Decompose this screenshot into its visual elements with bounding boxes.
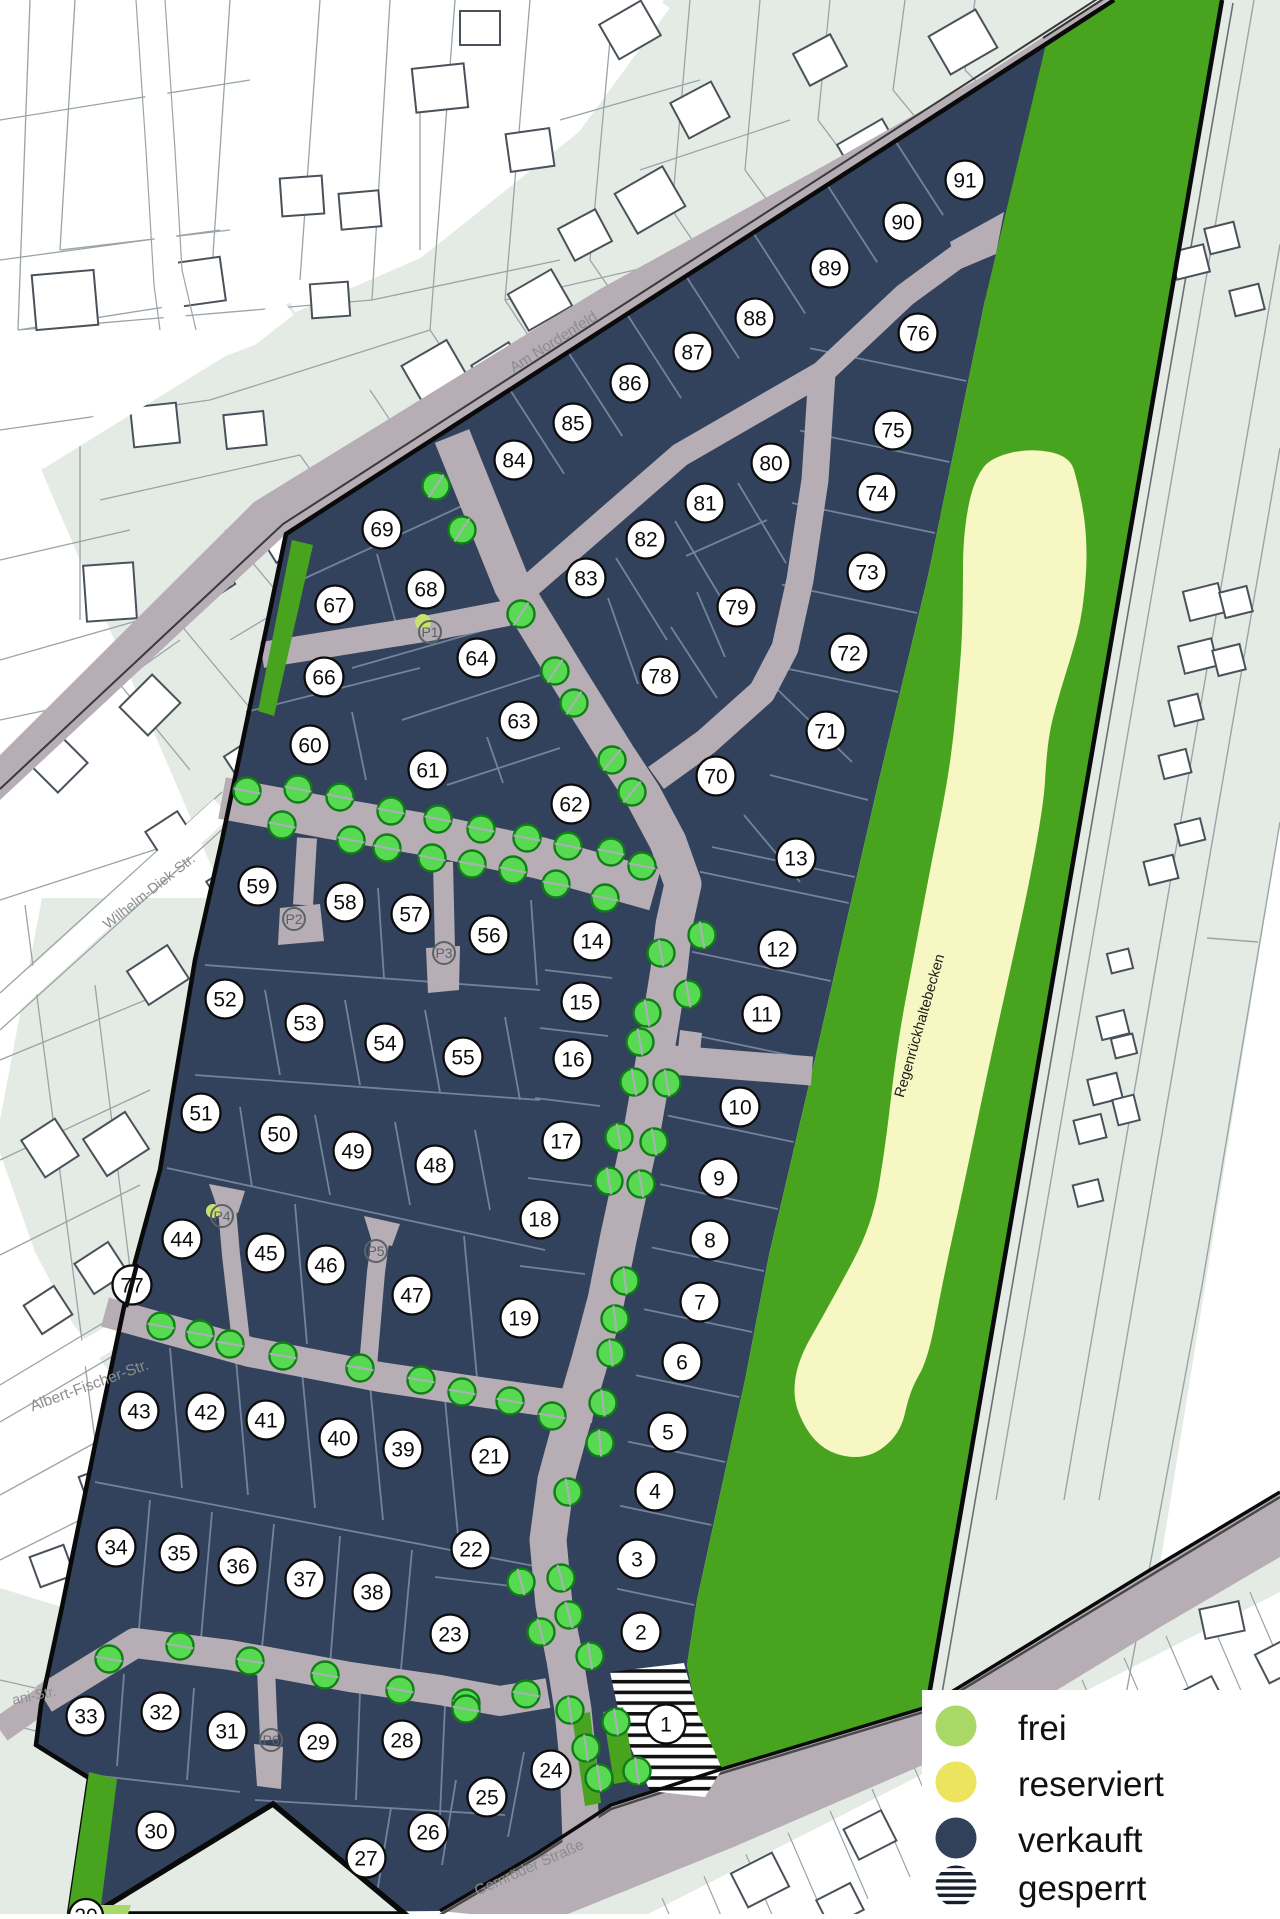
svg-text:90: 90 xyxy=(891,212,914,235)
svg-text:85: 85 xyxy=(561,413,584,436)
svg-text:4: 4 xyxy=(649,1481,661,1504)
svg-text:55: 55 xyxy=(451,1047,474,1070)
svg-text:75: 75 xyxy=(881,420,904,443)
svg-text:66: 66 xyxy=(312,667,335,690)
svg-text:62: 62 xyxy=(559,794,582,817)
svg-text:35: 35 xyxy=(167,1543,190,1566)
svg-text:verkauft: verkauft xyxy=(1018,1821,1143,1860)
svg-text:63: 63 xyxy=(507,711,530,734)
svg-text:P3: P3 xyxy=(435,945,452,961)
svg-text:71: 71 xyxy=(814,721,837,744)
svg-text:82: 82 xyxy=(634,529,657,552)
svg-text:67: 67 xyxy=(323,595,346,618)
svg-text:60: 60 xyxy=(298,735,321,758)
svg-text:8: 8 xyxy=(704,1230,716,1253)
svg-text:88: 88 xyxy=(743,308,766,331)
svg-text:50: 50 xyxy=(267,1124,290,1147)
svg-text:2: 2 xyxy=(635,1622,647,1645)
svg-text:64: 64 xyxy=(465,648,489,671)
svg-text:38: 38 xyxy=(360,1582,383,1605)
svg-text:7: 7 xyxy=(694,1292,706,1315)
svg-text:26: 26 xyxy=(416,1822,439,1845)
svg-text:18: 18 xyxy=(528,1209,551,1232)
svg-text:48: 48 xyxy=(423,1155,446,1178)
svg-text:13: 13 xyxy=(784,848,807,871)
svg-text:19: 19 xyxy=(508,1308,531,1331)
svg-text:68: 68 xyxy=(414,579,437,602)
svg-text:30: 30 xyxy=(144,1821,167,1844)
svg-text:21: 21 xyxy=(478,1446,501,1469)
svg-text:10: 10 xyxy=(728,1097,751,1120)
svg-text:9: 9 xyxy=(713,1168,725,1191)
svg-text:6: 6 xyxy=(676,1352,688,1375)
svg-text:54: 54 xyxy=(373,1033,397,1056)
svg-text:84: 84 xyxy=(502,450,526,473)
svg-text:72: 72 xyxy=(837,643,860,666)
svg-text:51: 51 xyxy=(189,1103,212,1126)
svg-text:P1: P1 xyxy=(421,624,438,640)
svg-text:15: 15 xyxy=(569,992,592,1015)
svg-text:40: 40 xyxy=(327,1428,350,1451)
svg-text:31: 31 xyxy=(215,1721,238,1744)
svg-text:22: 22 xyxy=(459,1539,482,1562)
svg-text:17: 17 xyxy=(550,1131,573,1154)
svg-text:49: 49 xyxy=(341,1141,364,1164)
svg-text:29: 29 xyxy=(306,1732,329,1755)
svg-text:53: 53 xyxy=(293,1013,316,1036)
svg-text:39: 39 xyxy=(391,1439,414,1462)
svg-text:12: 12 xyxy=(766,939,789,962)
svg-text:79: 79 xyxy=(725,597,748,620)
svg-text:70: 70 xyxy=(704,766,727,789)
svg-text:P6: P6 xyxy=(262,1732,279,1748)
svg-text:52: 52 xyxy=(213,989,236,1012)
svg-text:P2: P2 xyxy=(285,911,302,927)
svg-text:57: 57 xyxy=(399,904,422,927)
svg-text:81: 81 xyxy=(693,493,716,516)
svg-text:1: 1 xyxy=(660,1714,672,1737)
svg-text:27: 27 xyxy=(354,1848,377,1871)
svg-text:42: 42 xyxy=(194,1402,217,1425)
svg-text:78: 78 xyxy=(648,666,671,689)
svg-text:87: 87 xyxy=(681,342,704,365)
svg-text:reserviert: reserviert xyxy=(1018,1765,1164,1804)
svg-text:11: 11 xyxy=(751,1004,773,1027)
svg-text:73: 73 xyxy=(855,562,878,585)
svg-text:28: 28 xyxy=(390,1730,413,1753)
svg-text:69: 69 xyxy=(370,519,393,542)
svg-text:gesperrt: gesperrt xyxy=(1018,1869,1147,1908)
svg-text:16: 16 xyxy=(561,1049,584,1072)
svg-text:41: 41 xyxy=(254,1410,277,1433)
svg-text:46: 46 xyxy=(314,1255,337,1278)
svg-text:89: 89 xyxy=(818,258,841,281)
svg-text:83: 83 xyxy=(574,568,597,591)
svg-text:45: 45 xyxy=(254,1243,277,1266)
svg-text:44: 44 xyxy=(170,1229,194,1252)
svg-text:59: 59 xyxy=(246,876,269,899)
svg-text:36: 36 xyxy=(226,1556,249,1579)
svg-text:32: 32 xyxy=(149,1702,172,1725)
svg-text:25: 25 xyxy=(475,1787,498,1810)
svg-text:5: 5 xyxy=(662,1422,674,1445)
svg-text:34: 34 xyxy=(104,1537,128,1560)
svg-text:86: 86 xyxy=(618,373,641,396)
svg-text:33: 33 xyxy=(74,1706,97,1729)
svg-text:76: 76 xyxy=(906,323,929,346)
svg-text:20: 20 xyxy=(74,1905,97,1914)
svg-text:58: 58 xyxy=(333,892,356,915)
svg-text:23: 23 xyxy=(438,1624,461,1647)
svg-text:56: 56 xyxy=(477,925,500,948)
svg-text:3: 3 xyxy=(631,1549,643,1572)
svg-text:P4: P4 xyxy=(213,1208,230,1224)
svg-text:24: 24 xyxy=(539,1760,563,1783)
svg-text:74: 74 xyxy=(865,483,889,506)
svg-text:frei: frei xyxy=(1018,1709,1067,1748)
svg-text:47: 47 xyxy=(400,1285,423,1308)
svg-text:43: 43 xyxy=(127,1401,150,1424)
svg-text:14: 14 xyxy=(580,931,604,954)
svg-text:91: 91 xyxy=(953,170,976,193)
svg-text:37: 37 xyxy=(293,1569,316,1592)
svg-text:61: 61 xyxy=(416,760,439,783)
svg-text:P5: P5 xyxy=(367,1243,384,1259)
svg-text:80: 80 xyxy=(759,453,782,476)
